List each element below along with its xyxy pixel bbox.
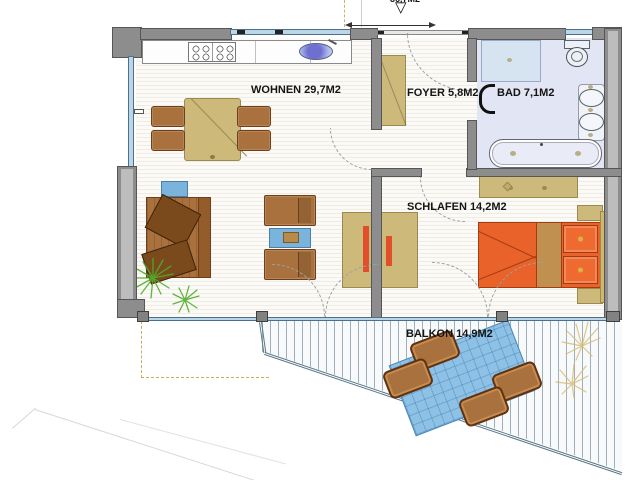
dining-table: [184, 98, 241, 161]
armchair: [264, 195, 316, 226]
facade-post: [256, 311, 268, 322]
sink-basin: [579, 113, 604, 131]
site-line: [120, 419, 286, 464]
soap-dot: [588, 133, 593, 137]
bathroom-door-leaf: [479, 84, 495, 114]
terrace-boundary-dashed: [141, 321, 142, 378]
toilet-icon: [562, 40, 592, 68]
wall-left: [117, 166, 137, 316]
wall-foyer-bedroom: [371, 168, 422, 177]
dimension-line: [349, 25, 431, 26]
dimension-arrow-right: [429, 22, 436, 28]
window-top-kitchen: [230, 29, 352, 35]
dresser: [479, 176, 578, 198]
dimension-arrow-left: [345, 22, 352, 28]
wall-living-divider: [371, 38, 382, 130]
pillow: [563, 225, 598, 253]
tub-dot: [510, 151, 516, 156]
north-triangle-icon: ▽: [395, 0, 407, 15]
soap-dot: [588, 108, 593, 112]
window-left: [128, 56, 134, 168]
site-line: [12, 408, 36, 429]
tub-drain: [540, 143, 543, 146]
sink-basin: [579, 89, 604, 107]
room-label-balkon: BALKON 14,9M2: [406, 328, 493, 340]
floorplan-canvas: 36,7M2 ▽ WOHNEN 29,7M2 FOYER 5,8M2 BAD 7…: [0, 0, 640, 480]
tv-panel: [386, 236, 392, 266]
wall-bath-bedroom: [466, 168, 622, 177]
wall-foyer-bath: [467, 120, 477, 170]
bathtub: [489, 139, 602, 168]
soap-dot: [588, 85, 593, 89]
coffee-table: [269, 228, 311, 248]
facade-post: [606, 311, 620, 322]
glass-facade: [137, 317, 620, 321]
room-label-wohnen: WOHNEN 29,7M2: [251, 84, 341, 96]
wardrobe: [379, 55, 406, 126]
wall-corner-topleft: [112, 27, 142, 58]
dining-chair: [151, 130, 185, 151]
pillow: [563, 256, 598, 284]
dining-chair: [151, 106, 185, 127]
top-gray-line: [361, 0, 362, 27]
kitchen-sink-icon: [299, 43, 333, 60]
room-label-foyer: FOYER 5,8M2: [407, 87, 479, 99]
tub-dot: [575, 151, 581, 156]
shower-drain: [507, 58, 512, 62]
room-label-bad: BAD 7,1M2: [497, 87, 554, 99]
window-top-bath: [565, 29, 593, 35]
terrace-boundary-dashed: [141, 377, 269, 378]
site-line: [35, 409, 259, 480]
dining-chair: [237, 130, 271, 151]
wall-top: [468, 28, 566, 40]
dining-chair: [237, 106, 271, 127]
room-label-schlafen: SCHLAFEN 14,2M2: [407, 201, 507, 213]
facade-post: [137, 311, 149, 322]
balcony-plant-icon: [548, 320, 610, 410]
stove-icon: [188, 42, 236, 62]
wall-top: [140, 28, 232, 40]
